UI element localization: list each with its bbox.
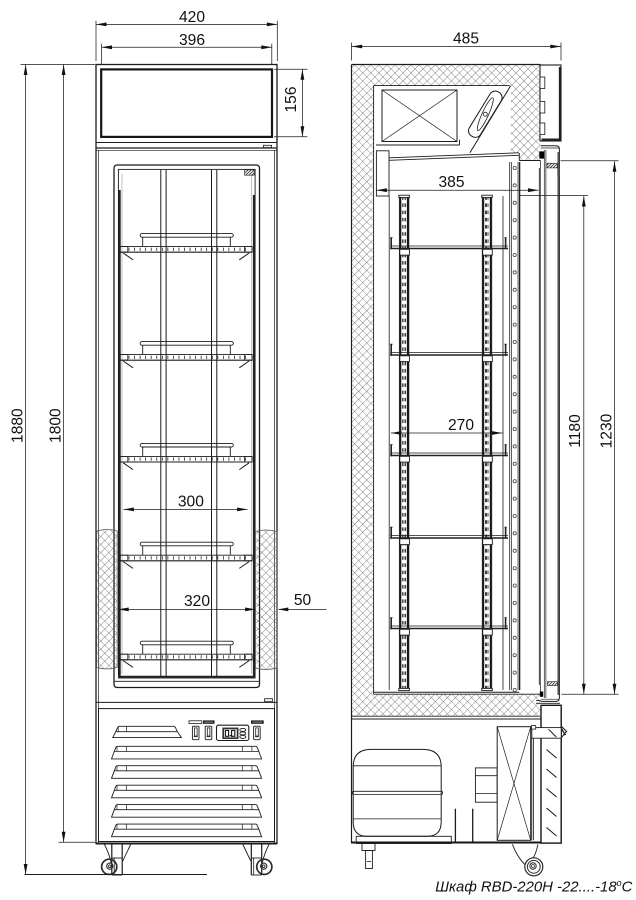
- svg-text:385: 385: [438, 174, 464, 191]
- svg-text:1880: 1880: [10, 408, 27, 443]
- svg-text:1800: 1800: [47, 408, 64, 443]
- svg-text:156: 156: [283, 86, 300, 112]
- svg-text:50: 50: [294, 592, 312, 609]
- svg-text:485: 485: [453, 30, 479, 47]
- svg-text:300: 300: [178, 493, 204, 510]
- svg-text:270: 270: [448, 417, 474, 434]
- svg-text:420: 420: [179, 9, 205, 26]
- svg-text:1180: 1180: [567, 414, 584, 448]
- svg-text:396: 396: [179, 32, 205, 49]
- svg-text:320: 320: [184, 593, 210, 610]
- svg-text:1230: 1230: [598, 413, 615, 448]
- svg-text:Шкаф RBD-220H -22....-18оС: Шкаф RBD-220H -22....-18оС: [435, 878, 632, 896]
